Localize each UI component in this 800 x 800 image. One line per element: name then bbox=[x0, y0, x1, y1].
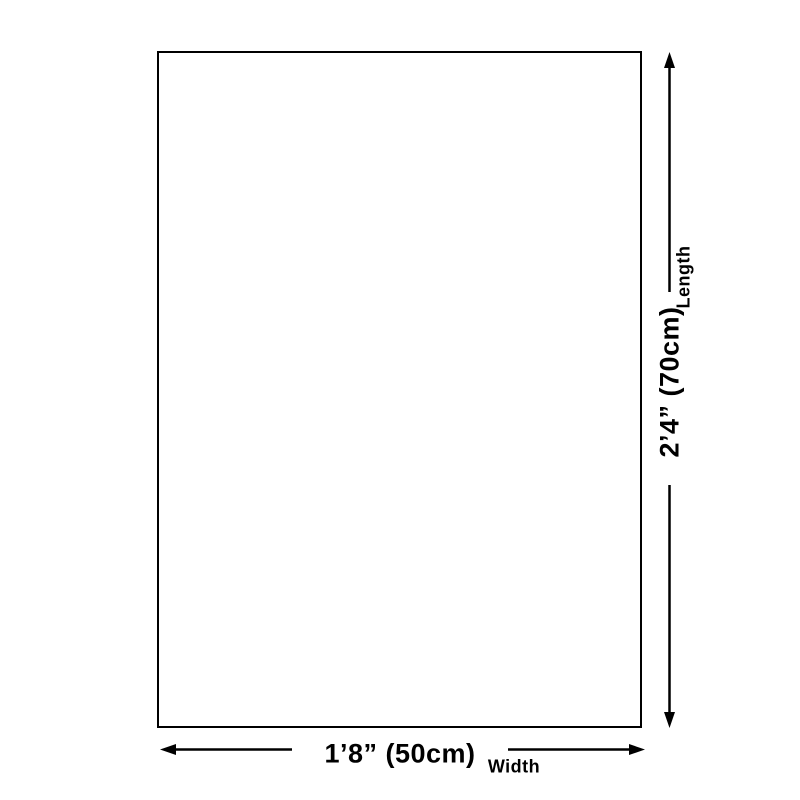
size-diagram: 1’8” (50cm) Width 2’4” (70cm) Length bbox=[0, 0, 800, 800]
length-dimension-label: Length bbox=[674, 246, 695, 309]
width-dimension-value: 1’8” (50cm) bbox=[324, 739, 475, 770]
arrow-right-icon bbox=[508, 744, 645, 755]
width-dimension-label: Width bbox=[488, 757, 540, 778]
length-dimension-value: 2’4” (70cm) bbox=[655, 306, 686, 457]
arrow-left-icon bbox=[160, 744, 292, 755]
arrow-down-icon bbox=[664, 485, 675, 728]
